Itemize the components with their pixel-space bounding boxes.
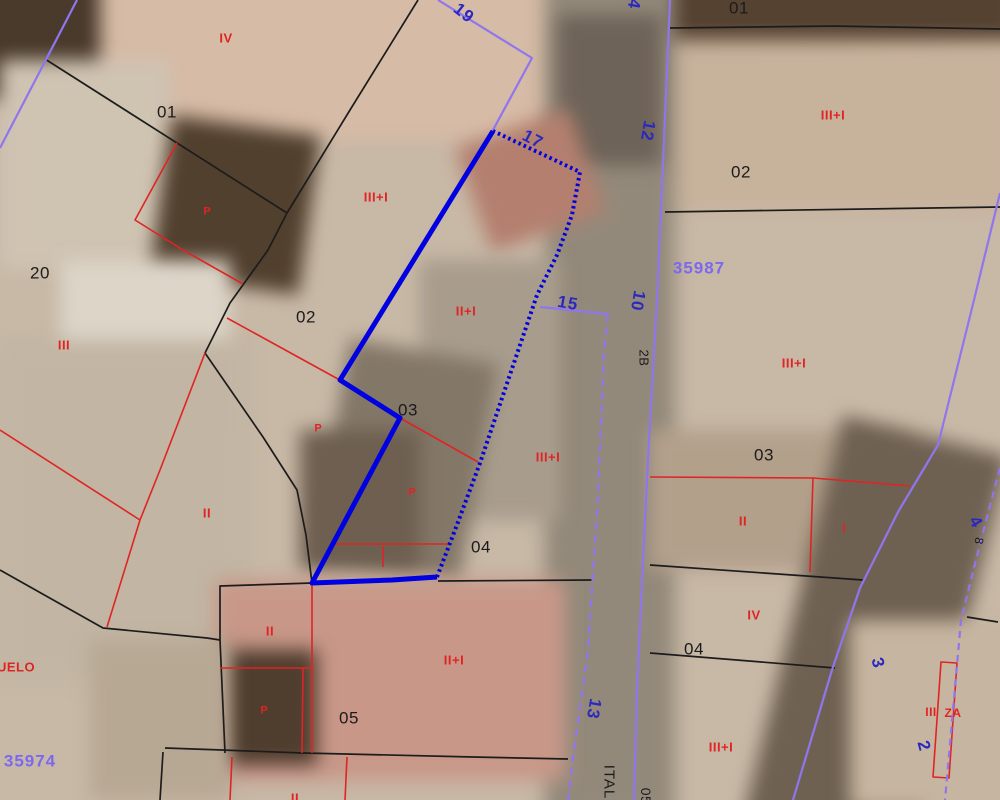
construction-label: II+I xyxy=(456,305,476,318)
street-number-label: 4 xyxy=(966,513,986,531)
construction-label: II xyxy=(203,507,211,520)
construction-label: II+I xyxy=(444,654,464,667)
street-number-label: 19 xyxy=(451,0,478,26)
street-number-label: 17 xyxy=(520,127,546,152)
parcel-number-label: 01 xyxy=(729,0,749,17)
construction-label: P xyxy=(408,488,415,499)
construction-label: II xyxy=(739,515,747,528)
parcel-number-label: 05 xyxy=(339,710,359,727)
parcel-number-label: 02 xyxy=(296,309,316,326)
block-number-label: 35974 xyxy=(4,753,56,770)
parcel-number-label: 20 xyxy=(30,265,50,282)
parcel-number-label: 04 xyxy=(471,539,491,556)
construction-label: III+I xyxy=(709,741,734,754)
street-number-label: 13 xyxy=(584,697,604,721)
construction-label: IV xyxy=(747,609,760,622)
parcel-number-label: 04 xyxy=(684,641,704,658)
cadastral-map-view[interactable]: 012002030405010203042B8ITAL05IVIII+IIIII… xyxy=(0,0,1000,800)
construction-label: III+I xyxy=(821,109,846,122)
construction-label: IV xyxy=(219,32,232,45)
street-name-label: ITAL xyxy=(602,765,617,800)
street-number-label: 10 xyxy=(628,289,648,313)
parcel-number-label: 02 xyxy=(731,164,751,181)
street-number-label: 3 xyxy=(868,656,887,671)
street-number-label: 15 xyxy=(556,293,580,313)
construction-label: III+I xyxy=(364,191,389,204)
address-number-label: 2B xyxy=(638,350,651,367)
ground-text-label: UELO xyxy=(0,661,35,674)
construction-label: III+I xyxy=(782,357,807,370)
construction-label: III xyxy=(58,339,70,352)
parcel-number-label: 05 xyxy=(639,788,653,800)
construction-label: III+I xyxy=(536,451,561,464)
construction-label: P xyxy=(314,424,321,435)
construction-label: II xyxy=(291,792,299,800)
street-number-label: 4 xyxy=(625,0,644,11)
block-number-label: 35987 xyxy=(673,260,725,277)
address-number-label: 8 xyxy=(972,536,985,545)
parcel-number-label: 03 xyxy=(754,447,774,464)
construction-label: II xyxy=(266,625,274,638)
parcel-number-label: 01 xyxy=(157,104,177,121)
parcel-number-label: 03 xyxy=(398,402,418,419)
street-number-label: 12 xyxy=(638,119,658,143)
street-number-label: 2 xyxy=(914,739,933,754)
construction-label: P xyxy=(203,207,210,218)
construction-label: ZA xyxy=(945,707,962,719)
construction-label: I xyxy=(842,522,846,535)
construction-label: III xyxy=(925,706,937,718)
construction-label: P xyxy=(260,706,267,717)
map-labels-layer: 012002030405010203042B8ITAL05IVIII+IIIII… xyxy=(0,0,1000,800)
